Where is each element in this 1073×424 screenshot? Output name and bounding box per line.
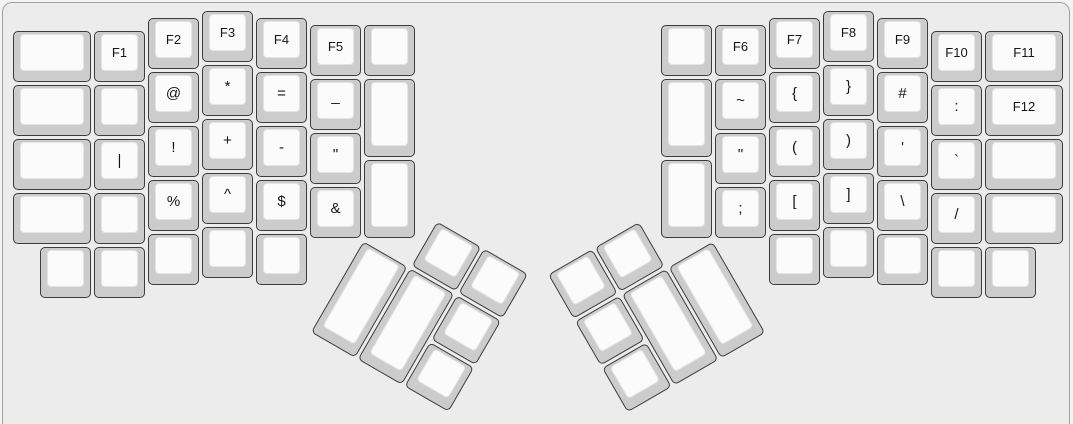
key-label: % [167,194,180,209]
key-label: " [738,147,743,162]
key-blank[interactable] [13,139,91,190]
keycap-top: [ [776,183,813,220]
key-blank[interactable] [256,234,307,285]
key-blank[interactable] [364,79,415,157]
keycap-top [20,88,84,125]
keycap-top: ~ [722,82,759,119]
key-label: { [792,86,797,101]
key-right-paren[interactable]: ) [823,119,874,170]
keycap-top [47,250,84,287]
key-blank[interactable] [148,234,199,285]
keycap-top: F3 [209,14,246,51]
key-label: _ [331,89,339,104]
key-label: ~ [736,93,745,108]
key-label: + [223,133,232,148]
key-label: | [118,153,122,168]
keycap-top: \ [884,183,921,220]
key-blank[interactable] [877,234,928,285]
key-backslash[interactable]: \ [877,180,928,231]
key-blank[interactable] [40,247,91,298]
key-label: ^ [224,187,231,202]
keycap-top [371,28,408,65]
keycap-top [209,230,246,267]
keycap-top: ; [722,190,759,227]
keycap-top [101,88,138,125]
keycap-top [101,196,138,233]
keycap-top: ` [938,142,975,179]
key-blank[interactable] [94,247,145,298]
key-f3[interactable]: F3 [202,11,253,62]
keycap-top: " [722,136,759,173]
keycap-top: F11 [992,34,1056,71]
key-blank[interactable] [769,234,820,285]
keycap-top [938,250,975,287]
key-f7[interactable]: F7 [769,18,820,69]
key-pipe[interactable]: | [94,139,145,190]
key-tilde[interactable]: ~ [715,79,766,130]
key-exclamation[interactable]: ! [148,126,199,177]
key-label: ( [792,140,797,155]
key-label: [ [792,194,796,209]
key-f5[interactable]: F5 [310,25,361,76]
key-label: ! [171,140,175,155]
key-left-paren[interactable]: ( [769,126,820,177]
key-label: F10 [945,46,967,59]
key-colon[interactable]: : [931,85,982,136]
keycap-top [992,142,1056,179]
keycap-top [101,250,138,287]
keycap-top: ) [830,122,867,159]
keycap-top: / [938,196,975,233]
key-percent[interactable]: % [148,180,199,231]
key-ampersand[interactable]: & [310,187,361,238]
key-blank[interactable] [94,85,145,136]
key-f8[interactable]: F8 [823,11,874,62]
keycap-top: $ [263,183,300,220]
key-label: F7 [787,33,802,46]
keycap-top [263,237,300,274]
key-double-quote[interactable]: " [310,133,361,184]
key-blank[interactable] [364,160,415,238]
keycap-top [830,230,867,267]
key-label: ] [846,187,850,202]
key-label: ; [738,201,742,216]
key-label: } [846,79,851,94]
keycap-top [668,28,705,65]
key-f4[interactable]: F4 [256,18,307,69]
keycap-top: F12 [992,88,1056,125]
keycap-top [20,196,84,233]
key-label: F12 [1013,100,1035,113]
key-blank[interactable] [364,25,415,76]
keycap-top: ] [830,176,867,213]
key-at[interactable]: @ [148,72,199,123]
key-plus[interactable]: + [202,119,253,170]
keycap-top: F5 [317,28,354,65]
key-f11[interactable]: F11 [985,31,1063,82]
keycap-top [884,237,921,274]
keycap-top: ^ [209,176,246,213]
key-label: ' [901,140,904,155]
keycap-top [20,142,84,179]
keycap-top: @ [155,75,192,112]
keycap-top [155,237,192,274]
key-blank[interactable] [823,227,874,278]
key-blank[interactable] [985,193,1063,244]
key-equals[interactable]: = [256,72,307,123]
key-label: $ [277,194,285,209]
key-label: F11 [1013,46,1034,59]
key-blank[interactable] [13,31,91,82]
key-label: / [954,207,958,222]
key-label: F6 [733,40,748,53]
keycap-top: : [938,88,975,125]
key-blank[interactable] [661,79,712,157]
key-blank[interactable] [13,193,91,244]
key-f12[interactable]: F12 [985,85,1063,136]
keycap-top [371,163,408,227]
key-label: " [333,147,338,162]
keycap-top: ' [884,129,921,166]
keycap-top: F2 [155,21,192,58]
key-label: & [330,201,340,216]
keycap-top: _ [317,82,354,119]
key-label: # [898,86,906,101]
keycap-top: " [317,136,354,173]
key-label: F2 [166,33,181,46]
key-blank[interactable] [931,247,982,298]
key-minus[interactable]: - [256,126,307,177]
key-label: F8 [841,26,856,39]
key-right-brace[interactable]: } [823,65,874,116]
key-label: F3 [220,26,235,39]
keycap-top: = [263,75,300,112]
key-caret[interactable]: ^ [202,173,253,224]
key-label: F9 [895,33,910,46]
key-backtick[interactable]: ` [931,139,982,190]
key-left-brace[interactable]: { [769,72,820,123]
keycap-top: + [209,122,246,159]
key-f2[interactable]: F2 [148,18,199,69]
key-label: F5 [328,40,343,53]
key-semicolon[interactable]: ; [715,187,766,238]
key-label: = [277,86,286,101]
keycap-top [20,34,84,71]
key-label: F1 [112,46,127,59]
key-double-quote[interactable]: " [715,133,766,184]
key-label: ` [954,153,959,168]
key-apostrophe[interactable]: ' [877,126,928,177]
keycap-top [992,250,1029,287]
key-underscore[interactable]: _ [310,79,361,130]
keyboard-stage: F1F2F3F4F5@*=_|!+-"%^$&F6F7F8F9F10F11~{}… [0,0,1073,424]
keycap-top [668,82,705,146]
keycap-top: F1 [101,34,138,71]
key-blank[interactable] [94,193,145,244]
key-label: * [225,79,231,94]
keycap-top: * [209,68,246,105]
key-right-bracket[interactable]: ] [823,173,874,224]
key-asterisk[interactable]: * [202,65,253,116]
keycap-top: # [884,75,921,112]
key-f10[interactable]: F10 [931,31,982,82]
key-blank[interactable] [985,247,1036,298]
keycap-top: ! [155,129,192,166]
keycap-top: | [101,142,138,179]
keycap-top: { [776,75,813,112]
keycap-top: F4 [263,21,300,58]
key-blank[interactable] [985,139,1063,190]
keycap-top: & [317,190,354,227]
keycap-top: F9 [884,21,921,58]
keycap-top: % [155,183,192,220]
keycap-top: F7 [776,21,813,58]
keycap-top: - [263,129,300,166]
keycap-top [776,237,813,274]
key-f6[interactable]: F6 [715,25,766,76]
keycap-top [668,163,705,227]
key-blank[interactable] [661,25,712,76]
keycap-top: F10 [938,34,975,71]
key-label: : [954,99,958,114]
key-label: ) [846,133,851,148]
key-blank[interactable] [661,160,712,238]
key-slash[interactable]: / [931,193,982,244]
key-blank[interactable] [13,85,91,136]
key-label: F4 [274,33,289,46]
key-blank[interactable] [202,227,253,278]
keycap-top: F6 [722,28,759,65]
key-label: - [279,140,284,155]
keycap-top [371,82,408,146]
keycap-top [992,196,1056,233]
key-f1[interactable]: F1 [94,31,145,82]
key-f9[interactable]: F9 [877,18,928,69]
keycap-top: F8 [830,14,867,51]
key-label: @ [166,86,181,101]
keycap-top: ( [776,129,813,166]
key-dollar[interactable]: $ [256,180,307,231]
key-left-bracket[interactable]: [ [769,180,820,231]
keycap-top: } [830,68,867,105]
key-label: \ [900,194,904,209]
key-hash[interactable]: # [877,72,928,123]
